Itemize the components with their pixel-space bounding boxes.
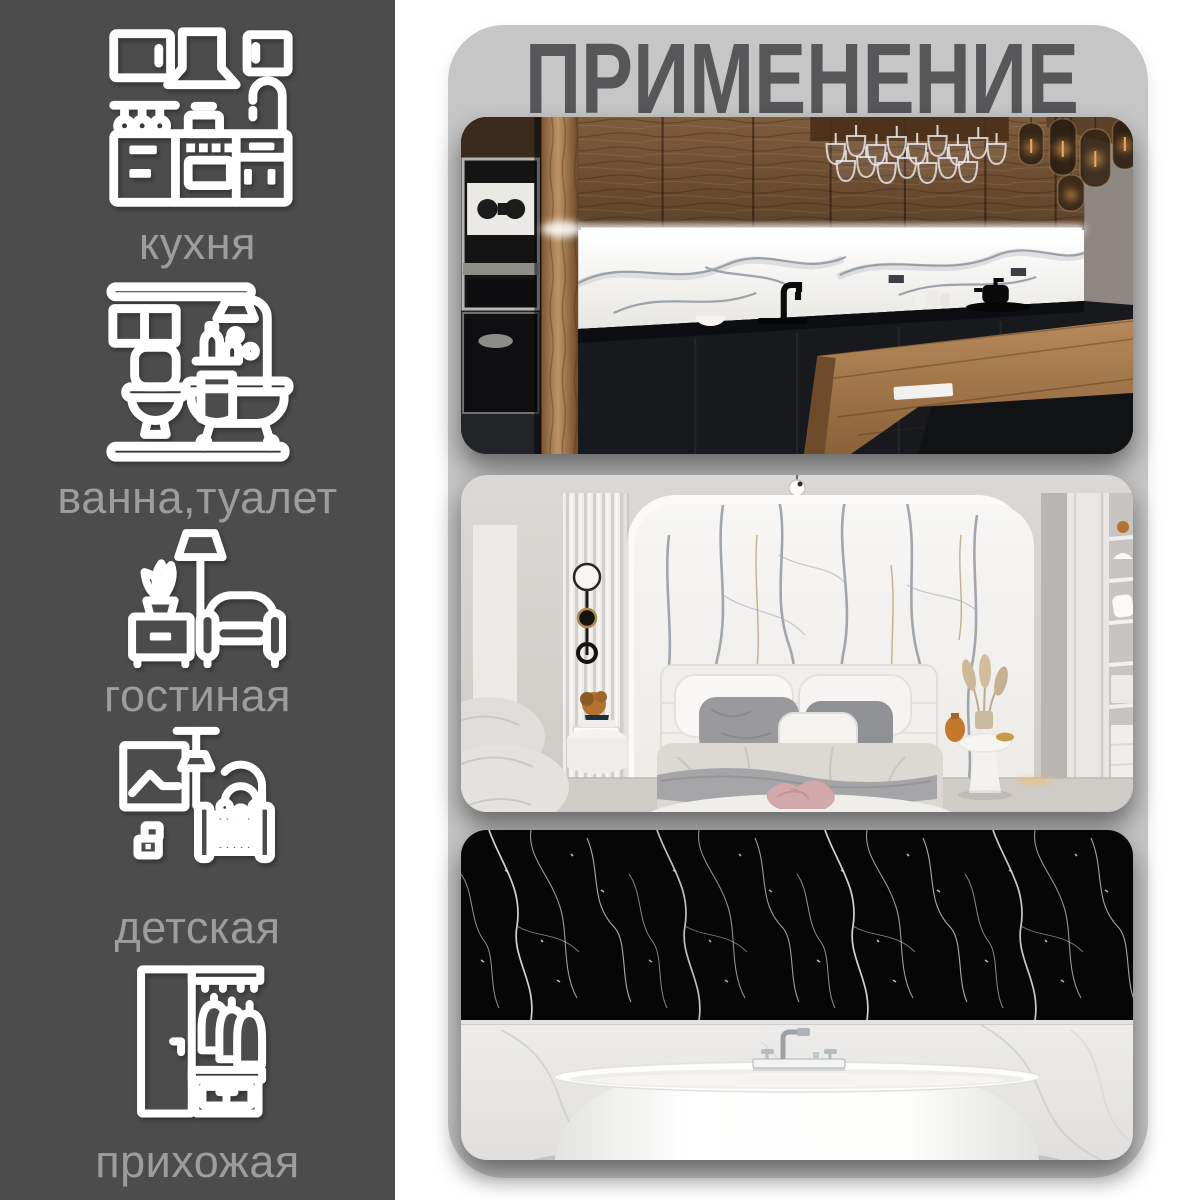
bathroom-photo-image (461, 830, 1133, 1160)
kitchen-photo (461, 117, 1133, 454)
page-title: ПРИМЕНЕНИЕ (525, 27, 1071, 131)
living-room-icon (109, 526, 287, 668)
sidebar-item-living-room: гостиная (0, 526, 395, 722)
bathroom-icon (99, 272, 297, 470)
bathroom-photo (461, 830, 1133, 1160)
hallway-icon (109, 956, 287, 1134)
sidebar-item-hallway: прихожая (0, 956, 395, 1188)
nursery-icon (109, 722, 287, 900)
room-sidebar: кухня (0, 0, 395, 1200)
product-infographic: кухня (0, 0, 1200, 1200)
kitchen-icon (100, 20, 296, 216)
sidebar-label-kitchen: кухня (139, 218, 256, 270)
application-panel: ПРИМЕНЕНИЕ (448, 25, 1148, 1178)
sidebar-item-kitchen: кухня (0, 20, 395, 270)
bedroom-photo-image (461, 475, 1133, 812)
kitchen-photo-image (461, 117, 1133, 454)
sidebar-label-bathroom: ванна,туалет (57, 472, 337, 524)
sidebar-item-nursery: детская (0, 722, 395, 954)
bedroom-photo (461, 475, 1133, 812)
sidebar-label-hallway: прихожая (95, 1136, 300, 1188)
sidebar-item-bathroom: ванна,туалет (0, 272, 395, 524)
sidebar-label-living-room: гостиная (104, 670, 291, 722)
sidebar-label-nursery: детская (115, 902, 281, 954)
